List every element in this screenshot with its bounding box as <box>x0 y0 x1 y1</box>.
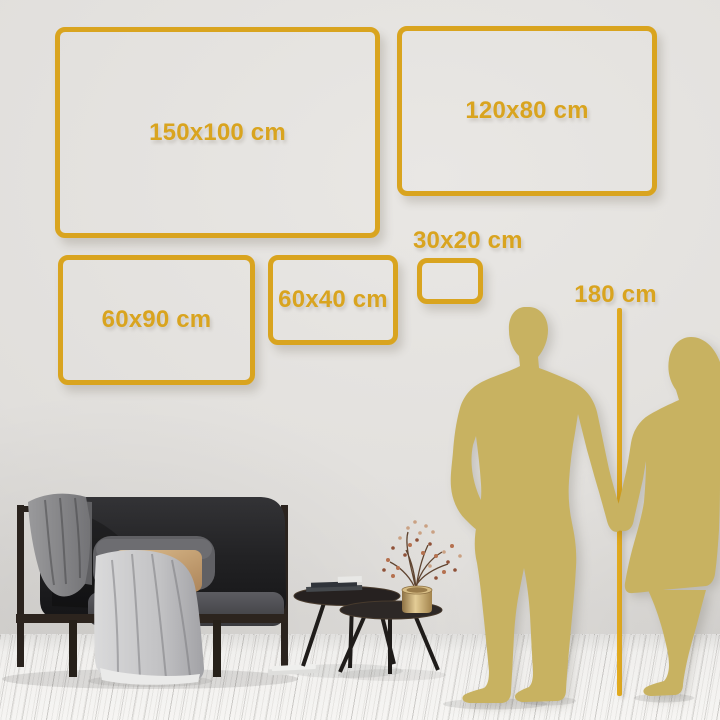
size-label-30x20: 30x20 cm <box>413 227 523 255</box>
gray-blanket <box>28 494 90 597</box>
size-label-150x100: 150x100 cm <box>149 119 286 147</box>
couple-silhouette <box>440 300 720 712</box>
size-option-30x20[interactable] <box>417 258 483 304</box>
size-comparison-graphic: 150x100 cm 120x80 cm 60x90 cm 60x40 cm 3… <box>0 0 720 720</box>
size-option-150x100[interactable]: 150x100 cm <box>55 27 380 238</box>
size-label-60x90: 60x90 cm <box>102 306 212 334</box>
brass-vase <box>402 586 432 613</box>
books <box>306 576 362 592</box>
man-silhouette <box>451 307 623 703</box>
size-label-60x40: 60x40 cm <box>278 286 388 314</box>
floor-shadows <box>2 664 446 689</box>
sofa <box>16 494 288 685</box>
size-option-120x80[interactable]: 120x80 cm <box>397 26 657 196</box>
woman-silhouette <box>615 337 720 696</box>
draped-blanket <box>94 550 204 685</box>
size-option-60x40[interactable]: 60x40 cm <box>268 255 398 345</box>
size-option-60x90[interactable]: 60x90 cm <box>58 255 255 385</box>
size-label-120x80: 120x80 cm <box>465 97 588 125</box>
